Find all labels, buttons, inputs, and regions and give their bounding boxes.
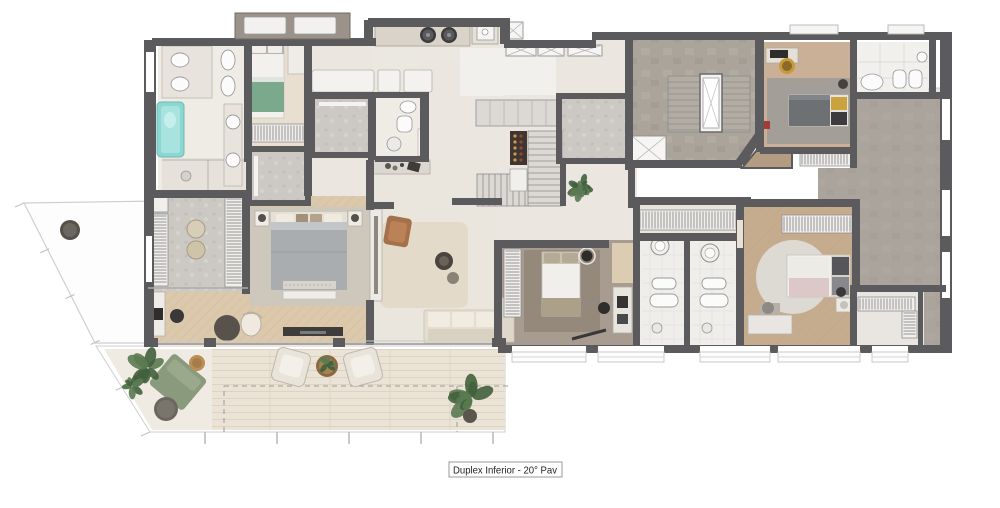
svg-text:Duplex Inferior - 20° Pav: Duplex Inferior - 20° Pav — [453, 465, 558, 477]
